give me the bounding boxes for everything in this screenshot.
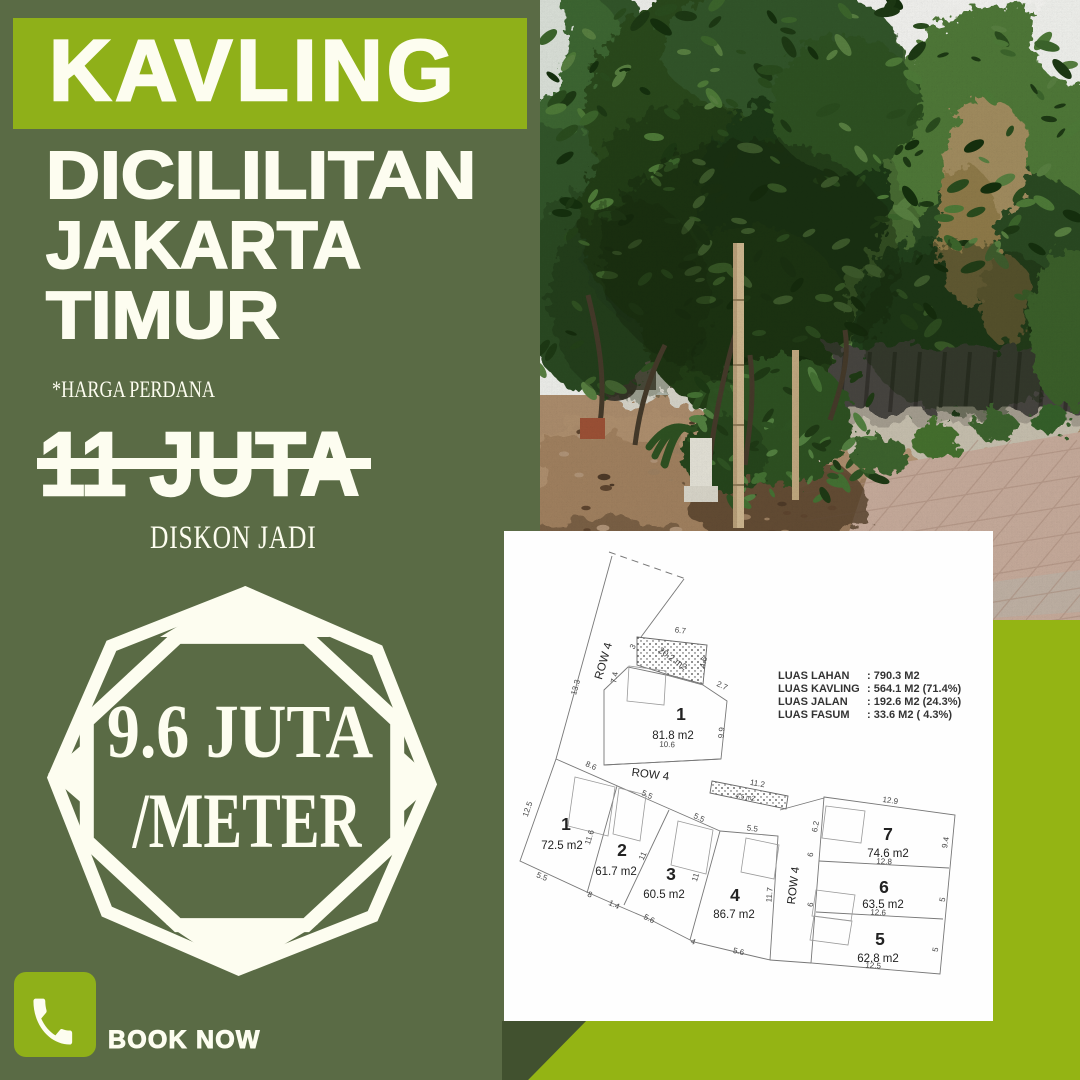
svg-text:11.7: 11.7 (764, 886, 774, 902)
svg-text:LUAS KAVLING: LUAS KAVLING (778, 683, 860, 695)
svg-text:5: 5 (938, 896, 948, 902)
svg-text:86.7 m2: 86.7 m2 (713, 909, 755, 921)
svg-text:61.7 m2: 61.7 m2 (595, 866, 637, 878)
svg-text:5.5: 5.5 (746, 823, 759, 834)
svg-text:6.7: 6.7 (674, 625, 687, 636)
svg-text:5.5: 5.5 (640, 788, 654, 801)
svg-text:LUAS LAHAN: LUAS LAHAN (778, 670, 850, 682)
svg-text:9.4: 9.4 (940, 836, 951, 849)
svg-text:1: 1 (676, 704, 686, 724)
svg-text:5.5: 5.5 (692, 811, 706, 824)
svg-text:: 33.6 M2 ( 4.3%): : 33.6 M2 ( 4.3%) (867, 709, 952, 721)
svg-text:10.6: 10.6 (659, 740, 676, 750)
svg-text:11: 11 (637, 850, 649, 862)
svg-text:9.9: 9.9 (717, 726, 727, 738)
svg-text:12.5: 12.5 (521, 800, 535, 818)
svg-text:LUAS JALAN: LUAS JALAN (778, 696, 848, 708)
svg-text:12.5: 12.5 (865, 960, 882, 970)
svg-text:72.5 m2: 72.5 m2 (541, 840, 583, 852)
svg-text:60.5 m2: 60.5 m2 (643, 889, 685, 901)
svg-text:6: 6 (879, 877, 889, 897)
svg-text:: 192.6 M2 (24.3%): : 192.6 M2 (24.3%) (867, 696, 961, 708)
svg-text:6.2: 6.2 (810, 820, 821, 833)
svg-text:ROW 4: ROW 4 (631, 767, 670, 784)
svg-text:11: 11 (690, 871, 701, 882)
svg-text:4: 4 (730, 885, 740, 905)
svg-text:1.4: 1.4 (607, 898, 621, 911)
svg-text:5: 5 (931, 946, 941, 952)
svg-text:: 564.1 M2 (71.4%): : 564.1 M2 (71.4%) (867, 683, 961, 695)
svg-text:5.5: 5.5 (535, 870, 549, 883)
svg-text:: 790.3 M2: : 790.3 M2 (867, 670, 920, 682)
svg-text:LUAS FASUM: LUAS FASUM (778, 709, 850, 721)
svg-text:5.6: 5.6 (642, 912, 656, 925)
svg-text:11.6: 11.6 (583, 828, 596, 845)
svg-text:8.6: 8.6 (584, 759, 598, 772)
svg-text:ROW 4: ROW 4 (786, 866, 803, 905)
svg-text:2.7: 2.7 (715, 679, 729, 692)
svg-text:12.8: 12.8 (876, 857, 893, 867)
svg-text:12.9: 12.9 (882, 795, 899, 806)
svg-text:4.6: 4.6 (698, 655, 710, 669)
svg-text:2: 2 (617, 840, 627, 860)
svg-text:5.6: 5.6 (732, 946, 745, 957)
svg-text:13.3: 13.3 (569, 678, 582, 696)
svg-text:3: 3 (666, 864, 676, 884)
svg-text:5: 5 (875, 929, 885, 949)
svg-text:7: 7 (883, 824, 893, 844)
svg-text:12.6: 12.6 (870, 908, 887, 918)
svg-text:11.2: 11.2 (749, 778, 766, 790)
svg-text:1: 1 (561, 814, 571, 834)
svg-text:6: 6 (806, 851, 816, 857)
